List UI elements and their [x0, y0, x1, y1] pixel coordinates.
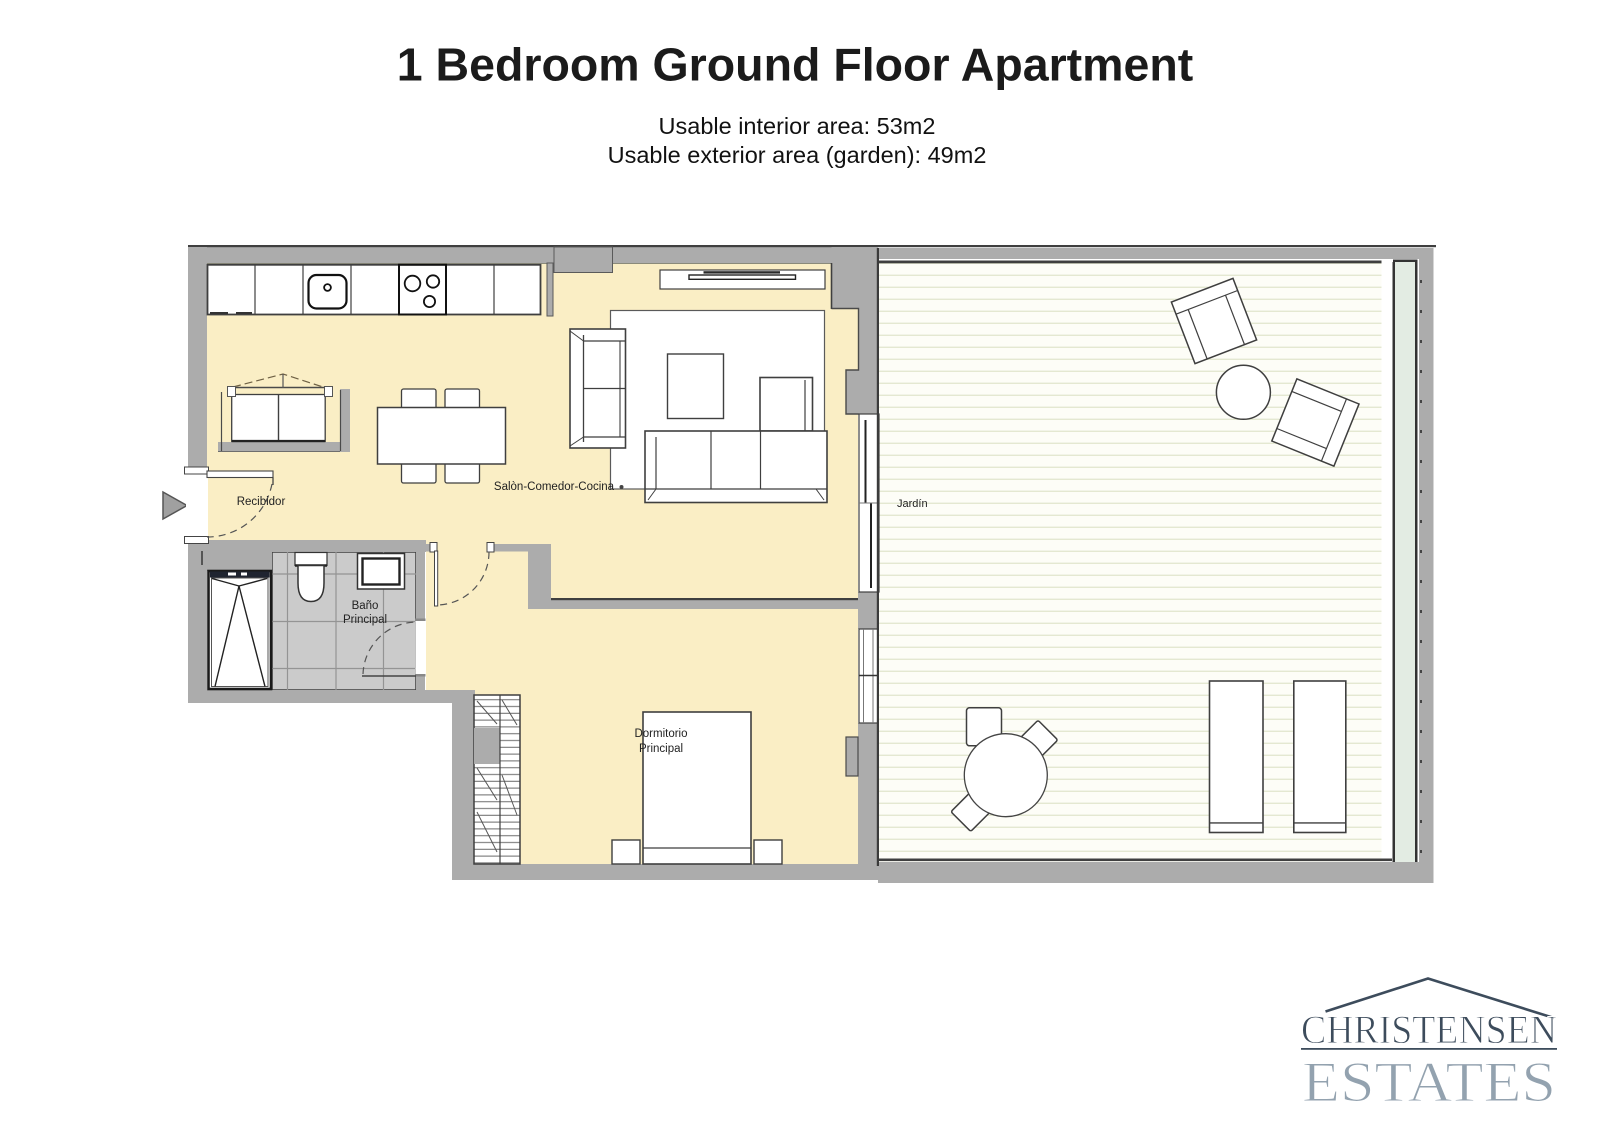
svg-text:Jardín: Jardín: [897, 498, 928, 510]
svg-text:ESTATES: ESTATES: [1302, 1051, 1556, 1114]
svg-text:Principal: Principal: [343, 614, 387, 626]
svg-text:Usable exterior area (garden):: Usable exterior area (garden): 49m2: [608, 142, 987, 168]
svg-text:Baño: Baño: [352, 600, 379, 612]
svg-text:Usable interior area: 53m2: Usable interior area: 53m2: [659, 113, 936, 139]
svg-text:CHRISTENSEN: CHRISTENSEN: [1301, 1007, 1557, 1052]
svg-text:Dormitorio: Dormitorio: [634, 728, 687, 740]
svg-text:1 Bedroom Ground Floor Apartme: 1 Bedroom Ground Floor Apartment: [397, 39, 1194, 91]
svg-text:Recibidor: Recibidor: [237, 496, 286, 508]
svg-text:Principal: Principal: [639, 743, 683, 755]
svg-text:Salòn-Comedor-Cocina: Salòn-Comedor-Cocina: [494, 481, 615, 493]
